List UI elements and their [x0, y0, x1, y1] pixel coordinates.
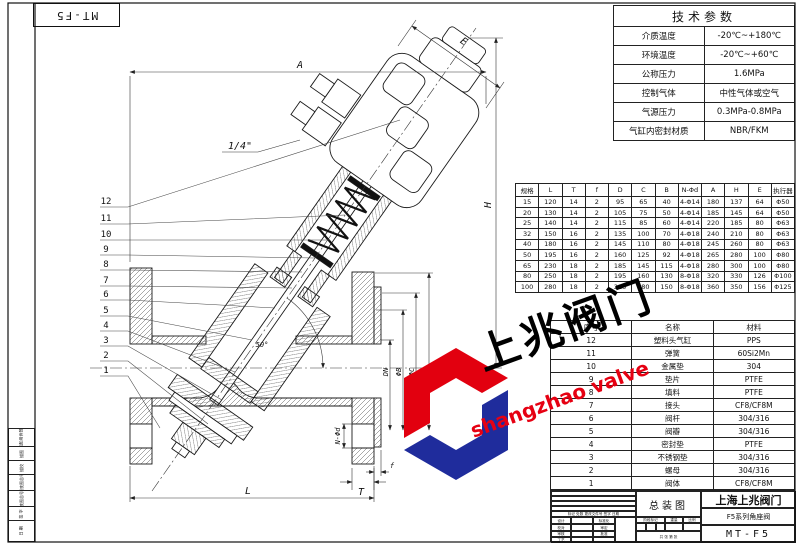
balloon-leaders: [100, 120, 400, 428]
col-header: H: [725, 184, 748, 197]
col-header: D: [609, 184, 632, 197]
cell: 195: [539, 250, 562, 261]
col-header: T: [562, 184, 585, 197]
cell: 16: [562, 239, 585, 250]
cell: 2: [585, 229, 608, 240]
table-row: 802501821951601308-Φ18320330126Φ100: [516, 271, 795, 282]
dimension-lines: [130, 20, 504, 502]
dim-T: T: [358, 487, 365, 498]
cell: 不锈钢垫: [632, 451, 713, 464]
cell: CF8/CF8M: [713, 477, 794, 490]
cell: 阀杆: [632, 412, 713, 425]
tech-params-table: 技术参数 介质温度-20℃~+180℃环境温度-20℃~+60℃公称压力1.6M…: [613, 5, 795, 136]
cell: Φ80: [771, 250, 794, 261]
cell: Φ125: [771, 282, 794, 293]
balloon-12: 12: [101, 197, 112, 207]
cell: 80: [516, 271, 539, 282]
table-row: 2013014210575504-Φ1418514564Φ50: [516, 207, 795, 218]
cell: 115: [609, 218, 632, 229]
drawing-sheet: 12 11 10 9 8 7 6 5 4 3 2 1 A E H L T f D…: [0, 0, 798, 550]
dim-E: E: [458, 36, 469, 48]
cell: 2: [585, 218, 608, 229]
cell: 填料: [632, 386, 713, 399]
cell: 70: [655, 229, 678, 240]
cell: 7: [551, 399, 632, 412]
cell: Φ100: [771, 271, 794, 282]
cell: 137: [725, 197, 748, 208]
cell: 195: [609, 271, 632, 282]
sign-approve1: 审定: [593, 524, 615, 531]
left-binding-strip: 借(通)用件登记描图描校旧底图总号底图总号签 字日 期: [8, 428, 35, 542]
cell: 280: [539, 282, 562, 293]
product-name: F5系列角座阀: [701, 508, 796, 525]
dim-DN: DN: [382, 367, 390, 377]
cell: 60: [655, 218, 678, 229]
table-row: 1002801822151801508-Φ18360350156Φ125: [516, 282, 795, 293]
binding-strip-cell: 描图: [8, 446, 35, 460]
dim-H: H: [483, 201, 494, 209]
cell: 塑料头气缸: [632, 334, 713, 347]
col-header: 序号: [551, 321, 632, 334]
table-row: 2螺母304/316: [551, 464, 795, 477]
corner-code-label: MT-F5: [55, 9, 98, 22]
cell: 14: [562, 197, 585, 208]
param-value: 0.3MPa-0.8MPa: [704, 103, 795, 122]
cell: 100: [748, 250, 771, 261]
cell: 垫片: [632, 373, 713, 386]
col-header: 名称: [632, 321, 713, 334]
cell: 180: [702, 197, 725, 208]
cell: 12: [551, 334, 632, 347]
balloon-6: 6: [103, 290, 108, 300]
cell: 18: [562, 271, 585, 282]
param-value: 中性气体或空气: [704, 84, 795, 103]
dim-port-quarter-inch: 1/4": [228, 141, 252, 152]
cell: 4-Φ18: [678, 229, 701, 240]
centerlines: [90, 28, 503, 491]
dim-angle-50: 50°: [256, 341, 269, 349]
cell: 130: [539, 207, 562, 218]
sign-standard: 标准化: [593, 517, 615, 524]
company-name: 上海上兆阀门: [701, 491, 796, 508]
cell: 4-Φ14: [678, 207, 701, 218]
param-label: 介质温度: [614, 27, 705, 46]
cell: 3: [551, 451, 632, 464]
table-row: 8填料PTFE: [551, 386, 795, 399]
cell: 25: [516, 218, 539, 229]
cell: 304/316: [713, 412, 794, 425]
cell: 4-Φ14: [678, 197, 701, 208]
table-row: 5阀瓣304/316: [551, 425, 795, 438]
cell: 80: [748, 239, 771, 250]
tech-param-row: 控制气体中性气体或空气: [614, 84, 795, 103]
balloon-5: 5: [103, 306, 108, 316]
table-row: 40180162145110804-Φ1824526080Φ63: [516, 239, 795, 250]
cell: 304/316: [713, 464, 794, 477]
cell: 92: [655, 250, 678, 261]
cell: 150: [539, 229, 562, 240]
cell: 2: [585, 271, 608, 282]
cell: 220: [702, 218, 725, 229]
cell: 230: [539, 260, 562, 271]
param-value: -20℃~+180℃: [704, 27, 795, 46]
param-value: -20℃~+60℃: [704, 46, 795, 65]
cell: 115: [655, 260, 678, 271]
cell: 320: [702, 271, 725, 282]
cell: 100: [632, 229, 655, 240]
cell: 阀体: [632, 477, 713, 490]
col-header: A: [702, 184, 725, 197]
cell: 8: [551, 386, 632, 399]
cell: 40: [655, 197, 678, 208]
col-header: L: [539, 184, 562, 197]
cell: 11: [551, 347, 632, 360]
cell: 4-Φ18: [678, 260, 701, 271]
binding-strip-cell: 旧底图总号: [8, 474, 35, 490]
tech-param-row: 公称压力1.6MPa: [614, 65, 795, 84]
table-row: 50195162160125924-Φ18265280100Φ80: [516, 250, 795, 261]
cell: PTFE: [713, 373, 794, 386]
parts-table: 序号名称材料12塑料头气缸PPS11弹簧60Si2Mn10金属垫3049垫片PT…: [550, 320, 795, 490]
col-header: f: [585, 184, 608, 197]
cell: 50: [516, 250, 539, 261]
cell: 4: [551, 438, 632, 451]
cell: 8-Φ18: [678, 271, 701, 282]
cell: 304: [713, 360, 794, 373]
cell: 密封垫: [632, 438, 713, 451]
cell: 10: [551, 360, 632, 373]
cell: 280: [702, 260, 725, 271]
cell: 120: [539, 197, 562, 208]
param-value: 1.6MPa: [704, 65, 795, 84]
balloon-1: 1: [103, 366, 108, 376]
col-header: 执行器: [771, 184, 794, 197]
col-header: B: [655, 184, 678, 197]
cell: 110: [632, 239, 655, 250]
cell: 40: [516, 239, 539, 250]
table-row: 151201429565404-Φ1418013764Φ50: [516, 197, 795, 208]
cell: 304/316: [713, 451, 794, 464]
logo-red-part: [404, 348, 508, 438]
cell: 145: [609, 239, 632, 250]
table-row: 1阀体CF8/CF8M: [551, 477, 795, 490]
cell: 1: [551, 477, 632, 490]
cell: 65: [632, 197, 655, 208]
cell: Φ50: [771, 207, 794, 218]
cell: 150: [655, 282, 678, 293]
cell: Φ63: [771, 239, 794, 250]
col-header: N-Φd: [678, 184, 701, 197]
cell: 126: [748, 271, 771, 282]
binding-strip-cell: 日 期: [8, 520, 35, 542]
cell: 9: [551, 373, 632, 386]
spring: [308, 181, 376, 258]
cell: 180: [539, 239, 562, 250]
cell: 135: [609, 229, 632, 240]
sign-design: 设计: [551, 517, 571, 524]
cell: 4-Φ18: [678, 239, 701, 250]
cell: 2: [585, 282, 608, 293]
dim-phiB: ΦB: [395, 368, 403, 376]
cell: 2: [585, 239, 608, 250]
balloon-4: 4: [103, 321, 108, 331]
balloon-9: 9: [103, 245, 108, 255]
table-row: 3不锈钢垫304/316: [551, 451, 795, 464]
cell: 185: [725, 218, 748, 229]
sheet-count: 共 张 第 张: [636, 531, 701, 543]
cell: 2: [585, 207, 608, 218]
cell: 16: [562, 229, 585, 240]
col-header: E: [748, 184, 771, 197]
cell: 阀瓣: [632, 425, 713, 438]
table-row: 4密封垫PTFE: [551, 438, 795, 451]
cell: PTFE: [713, 386, 794, 399]
tech-params-title: 技术参数: [614, 6, 795, 27]
cell: 185: [702, 207, 725, 218]
cell: 4-Φ14: [678, 218, 701, 229]
cell: 300: [725, 260, 748, 271]
corner-code-box: MT-F5: [33, 3, 120, 27]
cell: 265: [702, 250, 725, 261]
cell: 20: [516, 207, 539, 218]
cell: 15: [516, 197, 539, 208]
table-row: 10金属垫304: [551, 360, 795, 373]
cell: 接头: [632, 399, 713, 412]
cell: 6: [551, 412, 632, 425]
valve-disc: [168, 374, 253, 440]
binding-strip-cell: 底图总号: [8, 490, 35, 506]
table-row: 9垫片PTFE: [551, 373, 795, 386]
dim-phiC: ΦC: [408, 367, 416, 376]
balloon-2: 2: [103, 351, 108, 361]
param-label: 环境温度: [614, 46, 705, 65]
table-row: 12塑料头气缸PPS: [551, 334, 795, 347]
cell: 330: [725, 271, 748, 282]
air-port: [322, 79, 361, 118]
cell: Φ50: [771, 197, 794, 208]
actuator-head: [323, 46, 486, 214]
param-value: NBR/FKM: [704, 122, 795, 141]
balloon-7: 7: [103, 276, 108, 286]
cell: 145: [725, 207, 748, 218]
balloon-11: 11: [101, 214, 112, 224]
cell: Φ80: [771, 260, 794, 271]
cell: Φ63: [771, 218, 794, 229]
cell: 8-Φ18: [678, 282, 701, 293]
cell: 245: [702, 239, 725, 250]
cell: 215: [609, 282, 632, 293]
cell: 2: [585, 197, 608, 208]
tech-param-row: 介质温度-20℃~+180℃: [614, 27, 795, 46]
param-label: 公称压力: [614, 65, 705, 84]
cell: 75: [632, 207, 655, 218]
cell: 240: [702, 229, 725, 240]
assembly-drawing-label: 总装图: [636, 491, 701, 517]
col-header: 材料: [713, 321, 794, 334]
actuator-assembly: [95, 0, 514, 484]
cell: 156: [748, 282, 771, 293]
cell: 80: [748, 229, 771, 240]
cell: Φ63: [771, 229, 794, 240]
cell: 105: [609, 207, 632, 218]
cell: 5: [551, 425, 632, 438]
cell: 140: [539, 218, 562, 229]
param-label: 气源压力: [614, 103, 705, 122]
cell: 2: [585, 260, 608, 271]
cell: 32: [516, 229, 539, 240]
table-row: 11弹簧60Si2Mn: [551, 347, 795, 360]
cell: 14: [562, 207, 585, 218]
logo-blue-part: [404, 390, 508, 480]
dim-f: f: [390, 462, 395, 470]
col-header: 规格: [516, 184, 539, 197]
cell: 85: [632, 218, 655, 229]
balloon-numbers: 12 11 10 9 8 7 6 5 4 3 2 1: [101, 197, 112, 376]
cell: 280: [725, 250, 748, 261]
cell: 金属垫: [632, 360, 713, 373]
cell: 64: [748, 197, 771, 208]
cell: 185: [609, 260, 632, 271]
cell: 65: [516, 260, 539, 271]
cell: 160: [609, 250, 632, 261]
param-label: 控制气体: [614, 84, 705, 103]
param-label: 气缸内密封材质: [614, 122, 705, 141]
table-row: 6阀杆304/316: [551, 412, 795, 425]
cell: 50: [655, 207, 678, 218]
cell: CF8/CF8M: [713, 399, 794, 412]
table-row: 2514014211585604-Φ1422018580Φ63: [516, 218, 795, 229]
drawing-code: MT-F5: [701, 525, 796, 543]
brand-logo: [404, 348, 508, 480]
dim-A: A: [296, 60, 303, 71]
cell: PPS: [713, 334, 794, 347]
cell: 304/316: [713, 425, 794, 438]
cell: PTFE: [713, 438, 794, 451]
cell: 14: [562, 218, 585, 229]
cell: 60Si2Mn: [713, 347, 794, 360]
col-header: C: [632, 184, 655, 197]
balloon-8: 8: [103, 260, 108, 270]
cell: 100: [748, 260, 771, 271]
cell: 18: [562, 282, 585, 293]
sign-check: 校对: [551, 524, 571, 531]
cell: 2: [585, 250, 608, 261]
table-row: 32150162135100704-Φ1824021080Φ63: [516, 229, 795, 240]
cell: 16: [562, 250, 585, 261]
cell: 螺母: [632, 464, 713, 477]
binding-strip-cell: 借(通)用件登记: [8, 428, 35, 446]
tech-param-row: 气缸内密封材质NBR/FKM: [614, 122, 795, 141]
air-port: [302, 107, 341, 146]
dimension-labels: A E H L T f DN ΦB ΦC ΦD N-Φd 1/4" 50°: [228, 36, 494, 498]
balloon-3: 3: [103, 336, 108, 346]
cell: 360: [702, 282, 725, 293]
balloon-10: 10: [101, 230, 112, 240]
cell: 250: [539, 271, 562, 282]
dim-n-phi-d: N-Φd: [334, 427, 342, 446]
binding-strip-cell: 签 字: [8, 506, 35, 520]
cell: 100: [516, 282, 539, 293]
cell: 弹簧: [632, 347, 713, 360]
valve-body: [130, 268, 381, 464]
cell: 125: [632, 250, 655, 261]
cell: 180: [632, 282, 655, 293]
cell: 260: [725, 239, 748, 250]
cell: 95: [609, 197, 632, 208]
title-block: 标记 处数 更改文件号 签字 日期 设计 校对 审核 工艺 标准化 审定 批准 …: [550, 490, 795, 542]
cell: 160: [632, 271, 655, 282]
tech-param-row: 气源压力0.3MPa-0.8MPa: [614, 103, 795, 122]
sign-process: 工艺: [551, 537, 571, 543]
tech-param-row: 环境温度-20℃~+60℃: [614, 46, 795, 65]
cell: 18: [562, 260, 585, 271]
cell: 130: [655, 271, 678, 282]
dim-phiD: ΦD: [421, 368, 429, 376]
dimensions-table: 规格LTfDCBN-ΦdAHE执行器151201429565404-Φ14180…: [515, 183, 795, 293]
binding-strip-cell: 描校: [8, 460, 35, 474]
dim-L: L: [245, 486, 251, 497]
cell: 210: [725, 229, 748, 240]
cell: 80: [748, 218, 771, 229]
cell: 145: [632, 260, 655, 271]
table-row: 7接头CF8/CF8M: [551, 399, 795, 412]
cell: 64: [748, 207, 771, 218]
cell: 4-Φ18: [678, 250, 701, 261]
table-row: 652301821851451154-Φ18280300100Φ80: [516, 260, 795, 271]
cell: 80: [655, 239, 678, 250]
cell: 2: [551, 464, 632, 477]
cell: 350: [725, 282, 748, 293]
